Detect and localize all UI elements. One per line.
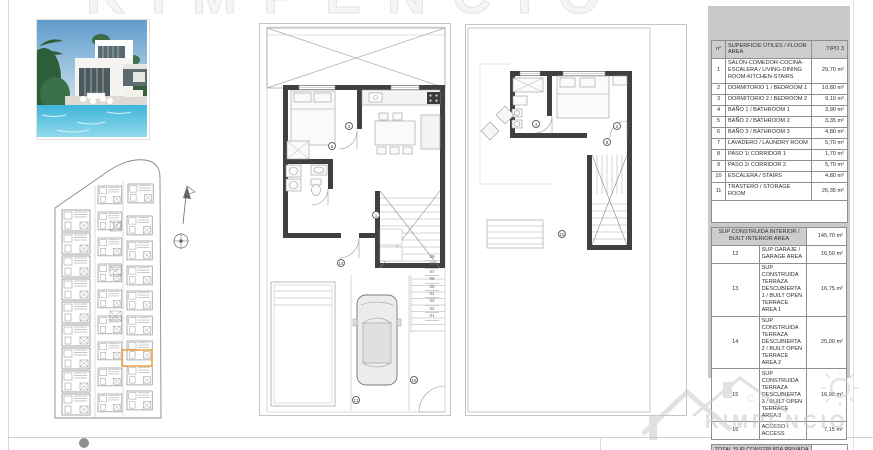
table-cell: 2	[712, 83, 726, 94]
room-number-badge: 14	[337, 259, 345, 267]
table-cell: 16,75 m²	[807, 263, 847, 316]
sheet-marker-dot	[79, 438, 89, 448]
room-number-badge: 8	[603, 138, 611, 146]
table-cell: SUP CONSTRUIDA TERRAZA DESCUBIERTA 1 / B…	[759, 263, 807, 316]
total-value: 228,00 m²	[812, 445, 848, 450]
room-number-badge: 1	[372, 211, 380, 219]
total-built-private-row: TOTAL SUP CONSTRUIDA PRIVADA / TOTAL BUI…	[711, 444, 848, 450]
stair-step-label: 07	[425, 269, 439, 276]
table-cell: 3,35 m²	[812, 116, 848, 127]
stair-step-numbers: 090807060504030201	[425, 254, 439, 321]
site-plan	[15, 146, 211, 434]
table-cell: 10,80 m²	[812, 83, 848, 94]
area-table-panel: n° SUPERFICIE ÚTILES / FLOOR AREA TIPO 3…	[708, 6, 850, 378]
table-cell: 5,70 m²	[812, 160, 848, 171]
table-cell: 8	[712, 149, 726, 160]
table-cell: 5,70 m²	[812, 138, 848, 149]
room-number-badge: 15	[558, 230, 566, 238]
table-cell: SUP CONSTRUIDA INTERIOR / BUILT INTERIOR…	[712, 227, 807, 245]
brand-small-text: Casas	[747, 393, 793, 405]
table-row: 9PASO 2/ CORRIDOR 25,70 m²	[712, 160, 848, 171]
table-cell: PASO 2/ CORRIDOR 2	[726, 160, 812, 171]
table-cell: 12	[712, 245, 760, 263]
table-row: 7LAVADERO / LAUNDRY ROOM5,70 m²	[712, 138, 848, 149]
table-row: 2DORMITORIO 1 / BEDROOM 110,80 m²	[712, 83, 848, 94]
table-cell: 25,00 m²	[807, 316, 847, 369]
table-cell: 4	[712, 105, 726, 116]
table-cell: 16,50 m²	[807, 245, 847, 263]
compass-icon	[173, 186, 195, 249]
room-number-badge: 4	[532, 120, 540, 128]
table-cell: 6	[712, 127, 726, 138]
table-cell: 4,80 m²	[812, 127, 848, 138]
sun-icon	[821, 372, 859, 406]
table-cell: 5	[712, 116, 726, 127]
stair-step-label: 03	[425, 298, 439, 305]
table-row: 5BAÑO 2 / BATHROOM 23,35 m²	[712, 116, 848, 127]
villa-photo-render	[37, 20, 147, 137]
stair-step-label: 05	[425, 284, 439, 291]
table-cell: DORMITORIO 1 / BEDROOM 1	[726, 83, 812, 94]
floor-area-table: n° SUPERFICIE ÚTILES / FLOOR AREA TIPO 3…	[711, 40, 848, 223]
header-description: SUPERFICIE ÚTILES / FLOOR AREA	[726, 41, 812, 59]
room-number-badge: 16	[410, 376, 418, 384]
table-cell: SUP CONSTRUIDA TERRAZA DESCUBIERTA 2 / B…	[759, 316, 807, 369]
table-row: 1SALÓN-COMEDOR-COCINA-ESCALERA / LIVING-…	[712, 58, 848, 83]
table-header-row: n° SUPERFICIE ÚTILES / FLOOR AREA TIPO 3	[712, 41, 848, 59]
table-row: 10ESCALERA / STAIRS4,80 m²	[712, 171, 848, 182]
table-cell: 14	[712, 316, 760, 369]
table-row: 14SUP CONSTRUIDA TERRAZA DESCUBIERTA 2 /…	[712, 316, 847, 369]
table-cell: 9	[712, 160, 726, 171]
table-row: 3DORMITORIO 2 / BEDROOM 29,10 m²	[712, 94, 848, 105]
ground-floor-plan: 090807060504030201 361141613	[259, 23, 451, 416]
room-number-badge: 3	[345, 122, 353, 130]
table-cell: LAVADERO / LAUNDRY ROOM	[726, 138, 812, 149]
page-left-rule	[8, 0, 9, 450]
header-type: TIPO 3	[812, 41, 848, 59]
brand-large-text: KIMPENCIO	[705, 412, 849, 433]
table-cell: 3,90 m²	[812, 105, 848, 116]
stair-step-label: 04	[425, 291, 439, 298]
room-number-badge: 2	[613, 122, 621, 130]
table-cell: PASO 1/ CORRIDOR 1	[726, 149, 812, 160]
table-row: 13SUP CONSTRUIDA TERRAZA DESCUBIERTA 1 /…	[712, 263, 847, 316]
room-number-badge: 13	[352, 396, 360, 404]
page-bottom-divider	[600, 437, 601, 450]
drawing-sheet: KIMPENCIO	[0, 0, 873, 450]
cooktop-icon	[427, 92, 440, 104]
table-cell: BAÑO 2 / BATHROOM 2	[726, 116, 812, 127]
unit-blocks	[62, 184, 153, 415]
pool-water	[37, 105, 147, 137]
ground-floor-plan-drawing	[259, 23, 451, 416]
room-number-badge: 6	[328, 142, 336, 150]
first-floor-plan-drawing	[465, 24, 687, 416]
table-cell: 1,70 m²	[812, 149, 848, 160]
plot-boundary	[55, 160, 161, 418]
stair-step-label: 06	[425, 276, 439, 283]
table-cell: TRASTERO / STORAGE ROOM	[726, 182, 812, 200]
table-cell: 1	[712, 58, 726, 83]
car-top-view	[353, 295, 401, 385]
stair-step-label: 09	[425, 254, 439, 261]
table-cell: DORMITORIO 2 / BEDROOM 2	[726, 94, 812, 105]
table-row: 4BAÑO 1 / BATHROOM 13,90 m²	[712, 105, 848, 116]
table-cell: SUP GARAJE / GARAGE AREA	[759, 245, 807, 263]
table-cell: 3	[712, 94, 726, 105]
table-cell: 29,70 m²	[812, 58, 848, 83]
table-row: 11TRASTERO / STORAGE ROOM26,35 m²	[712, 182, 848, 200]
table-cell: 4,80 m²	[812, 171, 848, 182]
spacer-row	[712, 200, 848, 222]
table-cell: 10	[712, 171, 726, 182]
table-cell: BAÑO 3 / BATHROOM 3	[726, 127, 812, 138]
site-plan-drawing	[15, 146, 211, 434]
table-row: 6BAÑO 3 / BATHROOM 34,80 m²	[712, 127, 848, 138]
table-row: SUP CONSTRUIDA INTERIOR / BUILT INTERIOR…	[712, 227, 847, 245]
table-cell: 7	[712, 138, 726, 149]
brand-logo: Casas KIMPENCIO	[635, 372, 873, 440]
brand-watermark: Casas KIMPENCIO	[635, 372, 873, 445]
table-cell: SALÓN-COMEDOR-COCINA-ESCALERA / LIVING-D…	[726, 58, 812, 83]
table-cell: 11	[712, 182, 726, 200]
stair-step-label: 02	[425, 306, 439, 313]
table-cell: ESCALERA / STAIRS	[726, 171, 812, 182]
table-cell: 9,10 m²	[812, 94, 848, 105]
stair-step-label: 08	[425, 261, 439, 268]
header-number: n°	[712, 41, 726, 59]
table-cell: 13	[712, 263, 760, 316]
table-cell: 145,70 m²	[807, 227, 847, 245]
first-floor-plan: 42815	[465, 24, 687, 416]
stair-step-label: 01	[425, 313, 439, 320]
table-cell: 26,35 m²	[812, 182, 848, 200]
table-row: 8PASO 1/ CORRIDOR 11,70 m²	[712, 149, 848, 160]
table-cell: BAÑO 1 / BATHROOM 1	[726, 105, 812, 116]
villa-photo	[36, 19, 150, 140]
total-label: TOTAL SUP CONSTRUIDA PRIVADA / TOTAL BUI…	[712, 445, 812, 450]
table-row: 12SUP GARAJE / GARAGE AREA16,50 m²	[712, 245, 847, 263]
